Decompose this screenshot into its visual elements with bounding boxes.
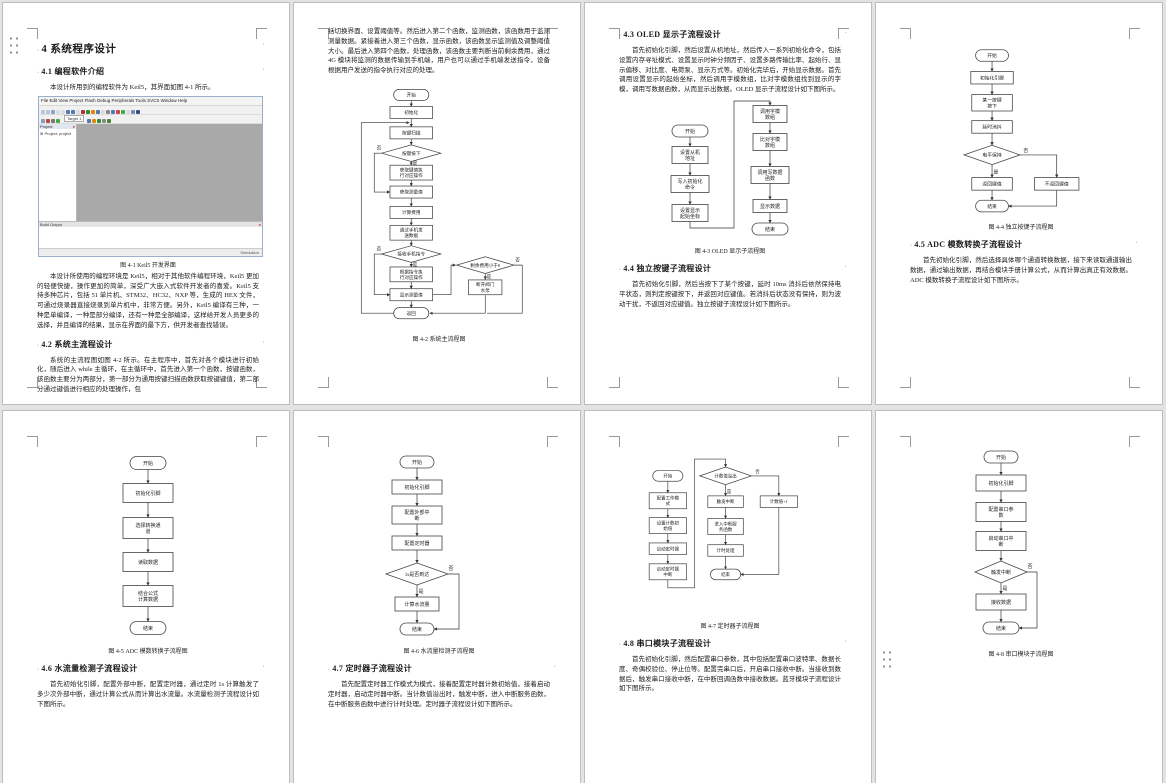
format-mark: · [619,33,621,39]
paragraph-mark: · [554,664,556,670]
svg-text:道: 道 [145,528,150,535]
svg-text:是: 是 [727,489,732,495]
svg-text:不返回键值: 不返回键值 [1045,181,1069,188]
svg-text:行对应操作: 行对应操作 [400,172,423,179]
svg-text:选择转换通: 选择转换通 [135,522,160,529]
format-mark: · [619,267,621,273]
svg-text:开始: 开始 [663,472,672,479]
svg-text:开始: 开始 [143,460,153,467]
svg-text:否: 否 [515,257,520,263]
paragraph[interactable]: 首先初始化引脚，然后当按下了某个按键，延时 10ms 消抖后依然保持电平状态，则… [619,280,841,309]
svg-text:断: 断 [414,515,419,522]
svg-text:计时处理: 计时处理 [717,547,735,554]
svg-text:开始: 开始 [412,459,422,466]
svg-text:始值: 始值 [663,525,672,532]
paragraph[interactable]: 系统的主流程图如图 4-2 所示。在主程序中，首先对各个模块进行初始化，随后进入… [37,356,259,395]
svg-text:开始: 开始 [996,454,1006,461]
section-heading-4-6[interactable]: ·4.6 水流量检测子流程设计· [37,663,259,674]
svg-text:读取数据: 读取数据 [138,559,158,566]
svg-text:调用字模: 调用字模 [760,108,780,115]
paragraph[interactable]: 首先初始化引脚，然后选择具体哪个通道转换数据，接下来读取通道输出数据，通过输出数… [910,256,1132,285]
svg-text:结束: 结束 [143,625,153,632]
svg-text:结束: 结束 [765,226,775,233]
svg-text:计算水流量: 计算水流量 [404,601,429,608]
svg-text:函数: 函数 [765,175,775,182]
editor-area [77,124,262,221]
svg-text:开始: 开始 [407,92,417,99]
svg-text:剩余费用小于0: 剩余费用小于0 [470,262,501,269]
svg-text:否: 否 [755,469,760,475]
svg-text:显示数据: 显示数据 [760,203,780,210]
svg-text:否: 否 [1023,148,1028,154]
svg-text:是: 是 [487,274,492,280]
figure-caption-4-4[interactable]: 图 4-4 独立按键子流程图 [910,222,1132,231]
svg-text:配置定时器: 配置定时器 [404,540,429,547]
svg-text:起始坐标: 起始坐标 [680,213,700,220]
close-icon: × [73,124,75,129]
svg-text:计算费用: 计算费用 [402,209,421,216]
svg-text:否: 否 [377,246,382,252]
format-mark: · [910,243,912,249]
svg-text:某一按键: 某一按键 [982,97,1001,104]
svg-text:配置外部中: 配置外部中 [404,509,429,516]
figure-caption-4-8[interactable]: 图 4-8 串口模块子流程图 [910,649,1132,658]
paragraph-mark: · [845,639,847,645]
svg-text:务函数: 务函数 [719,526,733,533]
paragraph[interactable]: 首先初始化引脚，配置外部中断，配置定时器，通过定时 1s 计算触发了多少次外部中… [37,680,259,709]
svg-text:比对字模: 比对字模 [760,136,780,143]
section-heading-4-2[interactable]: ·4.2 系统主流程设计· [37,339,259,350]
svg-text:按键扫描: 按键扫描 [402,129,421,136]
svg-text:配置串口参: 配置串口参 [988,506,1013,513]
section-heading-4-1[interactable]: ·4.1 编程软件介绍· [37,66,259,77]
keil-ide-screenshot[interactable]: File Edit View Project Flash Debug Perip… [38,96,263,257]
svg-text:开始: 开始 [987,52,997,59]
crop-mark [547,377,558,388]
svg-text:结束: 结束 [996,625,1006,632]
figure-caption-4-3[interactable]: 图 4-3 OLED 显示子流程图 [619,246,841,255]
format-mark: · [619,642,621,648]
drag-handle-dots-icon [881,649,892,669]
svg-text:计数值+1: 计数值+1 [770,498,788,505]
svg-text:延时消抖: 延时消抖 [982,124,1001,131]
page-6[interactable]: 开始初始化引脚配置外部中断配置定时器1s是否到达计算水流量结束是否 图 4-6 … [293,410,581,783]
svg-text:结合公式: 结合公式 [138,590,158,597]
svg-text:计数值溢出: 计数值溢出 [714,472,736,479]
paragraph-mark: · [1136,240,1138,246]
page-4[interactable]: 开始初始化引脚某一按键按下延时消抖电平保持返回键值不返回键值结束是否 图 4-4… [875,2,1163,405]
target-select: Target 1 [64,115,84,122]
flowchart-main-flow[interactable]: 开始初始化按键扫描按键按下获取键值执行对应操作获取测量值计算费用通过手机发送数据… [328,79,550,331]
status-bar: Simulation [39,248,262,255]
svg-text:水泵: 水泵 [481,287,491,293]
paragraph[interactable]: 本设计所使用的编程环境是 Keil5，相对于其他软件编程环境，Keil5 更加的… [37,272,259,331]
chapter-heading[interactable]: ·4 系统程序设计· [37,41,259,56]
format-mark: · [37,343,39,349]
svg-text:断: 断 [998,541,1003,548]
svg-text:否: 否 [1027,564,1032,570]
page-8[interactable]: 开始初始化引脚配置串口参数启动串口中断触发中断接收数据结束是否 图 4-8 串口… [875,410,1163,783]
paragraph-mark: · [263,340,265,346]
section-heading-4-3[interactable]: ·4.3 OLED 显示子流程设计· [619,29,841,40]
page-2[interactable]: 括切换界面、设置阈值等。然后进入第二个函数，监测函数，该函数用于监测测量数据。紧… [293,2,581,405]
project-panel-title: Project [40,124,52,129]
svg-text:显示测量值: 显示测量值 [400,291,423,298]
format-mark: · [328,667,330,673]
svg-text:初始化: 初始化 [404,109,418,116]
svg-text:调用写数据: 调用写数据 [757,169,782,176]
page-3[interactable]: ·4.3 OLED 显示子流程设计· 首先初始化引脚，然后设置从机地址，然后传入… [584,2,872,405]
svg-text:结束: 结束 [987,203,997,210]
section-heading-4-5[interactable]: ·4.5 ADC 模数转换子流程设计· [910,239,1132,250]
figure-caption-4-1[interactable]: 图 4-1 Keil5 开发界面 [37,260,259,269]
svg-text:是: 是 [1002,586,1007,592]
keil-toolbar-1 [39,106,262,115]
svg-text:地址: 地址 [685,155,695,162]
svg-text:按键按下: 按键按下 [402,150,421,157]
svg-text:触发中断: 触发中断 [991,569,1011,576]
svg-text:数组: 数组 [765,114,775,121]
svg-text:计算数据: 计算数据 [138,596,158,603]
svg-text:启动串口中: 启动串口中 [988,535,1013,542]
svg-text:式: 式 [666,500,671,506]
svg-text:初始化引脚: 初始化引脚 [135,490,160,497]
section-heading-4-8[interactable]: ·4.8 串口模块子流程设计· [619,638,841,649]
svg-text:设置从机: 设置从机 [680,149,700,156]
figure-caption-4-7[interactable]: 图 4-7 定时器子流程图 [619,621,841,630]
flowchart-water-flow[interactable]: 开始初始化引脚配置外部中断配置定时器1s是否到达计算水流量结束是否 [328,443,550,643]
crop-mark [1129,377,1140,388]
svg-text:电平保持: 电平保持 [982,152,1001,159]
paragraph-mark: · [845,264,847,270]
page-1[interactable]: ·4 系统程序设计· ·4.1 编程软件介绍· 本设计所用到的编程软件为 Kei… [2,2,290,405]
paragraph[interactable]: 首先初始化引脚，然后设置从机地址，然后传入一系列初始化命令，包括设置内存寻址模式… [619,46,841,95]
crop-mark [900,377,911,388]
project-panel: Project× ⊞ Project: project [39,124,77,221]
section-heading-4-7[interactable]: ·4.7 定时器子流程设计· [328,663,550,674]
flowchart-key[interactable]: 开始初始化引脚某一按键按下延时消抖电平保持返回键值不返回键值结束是否 [910,31,1132,219]
flowchart-timer[interactable]: 开始配置工作模式设置计数初始值启动定时器启动定时器中断计数值溢出触发中断进入中断… [619,443,841,618]
svg-text:结束: 结束 [412,626,422,633]
build-output-panel: Build Output× [39,221,262,248]
project-tree: ⊞ Project: project [39,129,76,138]
keil-toolbar-2: Target 1 [39,115,262,124]
paragraph-mark: · [263,42,266,48]
svg-text:开始: 开始 [685,128,695,135]
svg-text:初始化引脚: 初始化引脚 [988,480,1013,487]
crop-mark [318,377,329,388]
svg-text:返回: 返回 [407,310,417,317]
format-mark: · [37,667,39,673]
figure-caption-4-6[interactable]: 图 4-6 水流量检测子流程图 [328,646,550,655]
svg-text:按下: 按下 [987,102,997,109]
close-icon: × [259,222,261,227]
svg-text:数: 数 [998,512,1003,519]
svg-text:接收数据: 接收数据 [991,599,1011,606]
paragraph[interactable]: 首先初始化引脚，然后配置串口参数，其中包括配置串口波特率、数据长度、奇偶校验位、… [619,655,841,694]
format-mark: · [37,70,39,76]
svg-text:1s是否到达: 1s是否到达 [405,571,429,578]
svg-text:启动定时器: 启动定时器 [657,545,680,552]
crop-mark [609,377,620,388]
svg-text:是: 是 [993,169,998,175]
svg-text:行对应操作: 行对应操作 [400,274,423,281]
svg-text:命令: 命令 [685,184,695,191]
svg-text:初始化引脚: 初始化引脚 [404,484,429,491]
paragraph-mark: · [845,30,847,36]
svg-text:返回键值: 返回键值 [982,181,1001,188]
svg-text:中断: 中断 [663,571,672,578]
paragraph[interactable]: 首先配置定时器工作模式为模式，接着配置定时器计数初始值，接着启动定时器，启动定时… [328,680,550,709]
flowchart-uart[interactable]: 开始初始化引脚配置串口参数启动串口中断触发中断接收数据结束是否 [910,441,1132,646]
word-print-layout: ·4 系统程序设计· ·4.1 编程软件介绍· 本设计所用到的编程软件为 Kei… [0,0,1166,783]
svg-text:触发中断: 触发中断 [717,498,735,505]
flowchart-adc[interactable]: 开始初始化引脚选择转换通道读取数据结合公式计算数据结束 [37,443,259,643]
svg-text:否: 否 [448,566,453,572]
section-heading-4-4[interactable]: ·4.4 独立按键子流程设计· [619,263,841,274]
paragraph-mark: · [263,664,265,670]
figure-caption-4-2[interactable]: 图 4-2 系统主流程图 [328,334,550,343]
flowchart-oled[interactable]: 开始设置从机地址写入初始化命令设置显示起始坐标调用字模数组比对字模数组调用写数据… [619,98,841,243]
paragraph-mark: · [263,67,265,73]
drag-handle-dots-icon [8,35,19,55]
svg-text:送数据: 送数据 [404,232,418,239]
paragraph[interactable]: 本设计所用到的编程软件为 Keil5，其界面如图 4-1 所示。 [37,83,259,93]
svg-text:是: 是 [418,589,423,595]
page-5[interactable]: 开始初始化引脚选择转换通道读取数据结合公式计算数据结束 图 4-5 ADC 模数… [2,410,290,783]
svg-text:设置显示: 设置显示 [680,207,700,214]
svg-text:接收手机指令: 接收手机指令 [397,251,425,258]
figure-caption-4-5[interactable]: 图 4-5 ADC 模数转换子流程图 [37,646,259,655]
svg-text:数组: 数组 [765,142,775,149]
svg-text:初始化引脚: 初始化引脚 [980,74,1004,81]
format-mark: · [37,48,40,54]
build-output-title: Build Output [40,222,62,227]
svg-text:写入初始化: 写入初始化 [677,178,702,185]
svg-text:结束: 结束 [721,571,730,578]
page-7[interactable]: 开始配置工作模式设置计数初始值启动定时器启动定时器中断计数值溢出触发中断进入中断… [584,410,872,783]
svg-text:否: 否 [377,145,382,151]
paragraph[interactable]: 括切换界面、设置阈值等。然后进入第二个函数，监测函数，该函数用于监测测量数据。紧… [328,27,550,76]
svg-text:获取测量值: 获取测量值 [400,189,423,196]
crop-mark [838,377,849,388]
